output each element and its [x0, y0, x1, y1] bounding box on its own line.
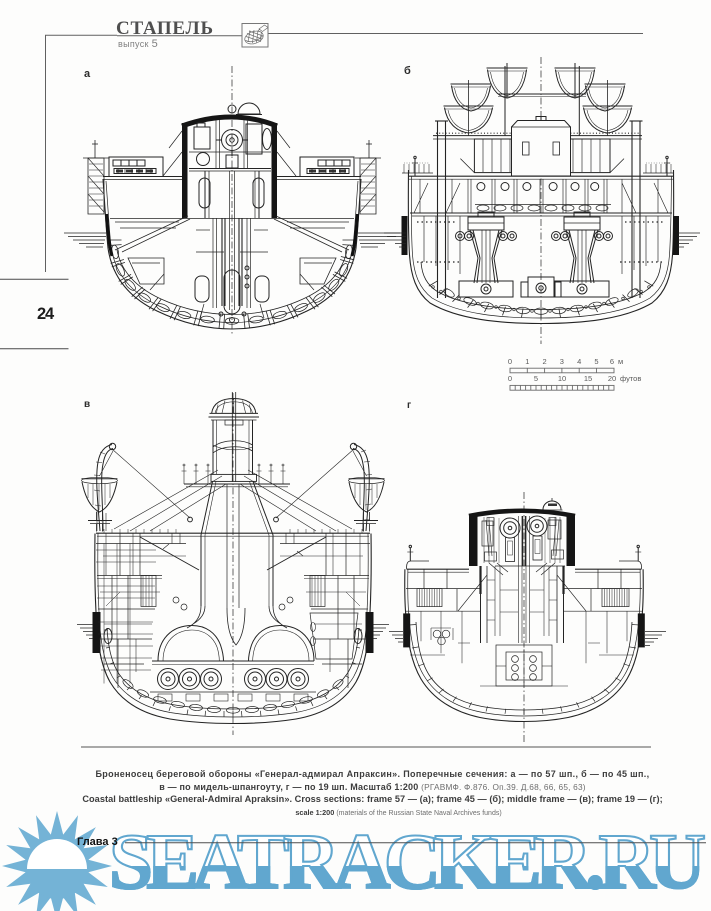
svg-text:СТАПЕЛЬ: СТАПЕЛЬ [116, 19, 213, 39]
